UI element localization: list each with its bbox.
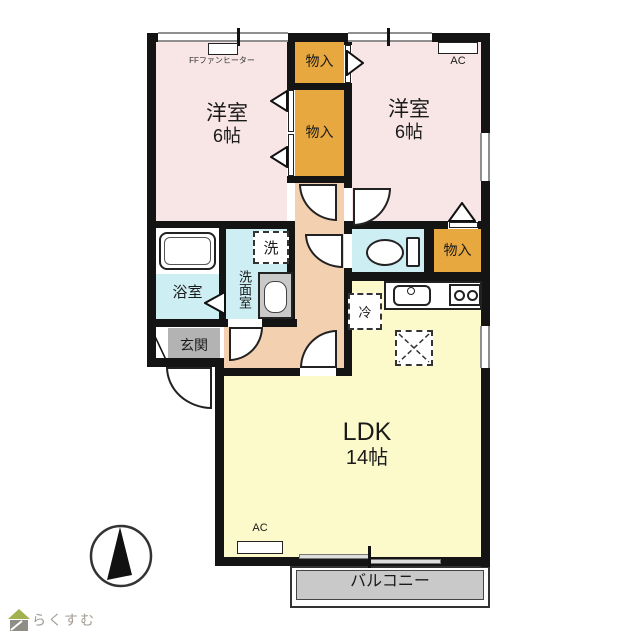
closet-door-triangle xyxy=(448,202,476,222)
logo-house-icon xyxy=(8,609,32,633)
ac-label-bedroom: AC xyxy=(435,55,481,68)
entrance-label: 玄関 xyxy=(168,337,220,353)
window-tick xyxy=(368,546,371,568)
floorplan: 洗 冷 FFファンヒーター AC AC 洋室 6帖 洋室 6帖 物入 物入 物入… xyxy=(0,0,640,640)
ac-label-ldk: AC xyxy=(234,522,286,535)
wall-segment xyxy=(424,221,434,275)
bedroom-right-name: 洋室 xyxy=(349,98,469,122)
bedroom-left-name: 洋室 xyxy=(167,102,287,126)
closet-door-panel xyxy=(288,90,294,132)
floor-hatch-box xyxy=(395,330,433,366)
ac-unit-bedroom xyxy=(438,42,478,54)
closet-door-panel xyxy=(449,222,478,228)
window-right-bedroom xyxy=(480,133,490,181)
wall-segment xyxy=(336,368,346,376)
closet-door-triangle xyxy=(270,146,288,168)
ff-heater-unit xyxy=(208,43,238,55)
wall-segment xyxy=(262,319,297,327)
closet-top-label: 物入 xyxy=(295,53,344,69)
balcony-sliding-door xyxy=(299,554,371,559)
logo-text: らくすむ xyxy=(32,612,112,628)
vanity-sink xyxy=(258,272,293,319)
wall-segment xyxy=(147,319,228,327)
closet-door-triangle xyxy=(346,50,364,76)
bathtub-inner xyxy=(164,237,211,265)
balcony-sliding-door xyxy=(369,559,441,564)
kitchen-faucet xyxy=(407,287,415,295)
wall-segment xyxy=(344,176,352,188)
ldk-size: 14帖 xyxy=(308,447,426,470)
burner xyxy=(467,290,478,301)
bedroom-right-size: 6帖 xyxy=(349,122,469,143)
window-right-ldk xyxy=(480,326,490,368)
wall-segment xyxy=(481,33,490,567)
refrigerator-label: 冷 xyxy=(358,302,371,321)
ff-heater-label: FFファンヒーター xyxy=(167,56,277,65)
wall-segment xyxy=(287,83,352,90)
wall-segment xyxy=(223,368,300,376)
refrigerator-box: 冷 xyxy=(348,293,382,330)
wall-segment xyxy=(287,33,295,90)
stove xyxy=(449,284,481,306)
wall-segment xyxy=(344,272,490,281)
ldk-label: LDK 14帖 xyxy=(308,418,426,470)
washing-machine-label: 洗 xyxy=(263,237,278,258)
wall-segment xyxy=(147,33,156,367)
bedroom-left-size: 6帖 xyxy=(167,126,287,147)
washroom-label: 洗面室 xyxy=(227,256,251,322)
burner xyxy=(454,290,465,301)
window-tick xyxy=(387,28,390,46)
window-top-left xyxy=(158,32,288,42)
closet-door-panel xyxy=(288,134,294,176)
toilet-tank xyxy=(406,237,420,267)
closet-middle-label: 物入 xyxy=(295,124,344,140)
wall-segment xyxy=(344,224,352,234)
wall-segment xyxy=(478,221,490,229)
bathtub xyxy=(159,232,216,270)
window-top-right xyxy=(348,32,432,42)
balcony-label: バルコニー xyxy=(310,573,470,591)
entrance-door-line xyxy=(150,328,170,364)
ac-unit-ldk xyxy=(237,541,283,554)
washing-machine-box: 洗 xyxy=(253,231,289,264)
bedroom-left-label: 洋室 6帖 xyxy=(167,102,287,147)
wall-segment xyxy=(287,176,352,183)
bedroom-right-label: 洋室 6帖 xyxy=(349,98,469,143)
toilet-bowl xyxy=(366,239,404,266)
compass xyxy=(88,523,156,591)
ldk-name: LDK xyxy=(308,418,426,447)
vanity-basin xyxy=(264,281,287,313)
hatch-cross xyxy=(397,332,431,364)
closet-side-label: 物入 xyxy=(434,242,481,258)
door-arc-entrance xyxy=(166,367,212,409)
wall-segment xyxy=(215,358,224,566)
bath-label: 浴室 xyxy=(156,284,219,301)
